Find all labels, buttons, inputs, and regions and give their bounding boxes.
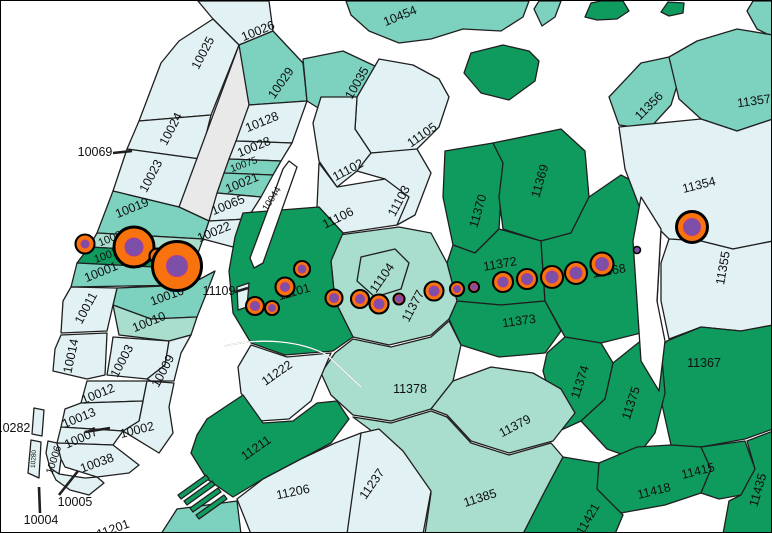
zip-label-10069: 10069 (78, 145, 113, 159)
zip-label-11109: 11109 (203, 284, 236, 298)
station-inner-dot (251, 302, 260, 311)
station-symbol (326, 290, 343, 307)
station-symbol (276, 278, 295, 297)
zip-label-10282: 10282 (1, 421, 30, 435)
station-inner-dot (81, 240, 89, 248)
zip-region-10282 (32, 408, 44, 436)
station-inner-dot (596, 258, 609, 271)
station-inner-dot (356, 295, 365, 304)
rikers-island (585, 1, 629, 20)
station-inner-dot (298, 265, 306, 273)
station-inner-dot (125, 238, 143, 256)
station-symbol (634, 247, 641, 254)
station-symbol (677, 212, 708, 243)
station-symbol (469, 282, 479, 292)
zip-region-11357 (669, 29, 772, 131)
station-symbol (294, 261, 310, 277)
bronx-shore-piece (534, 1, 561, 26)
station-inner-dot (374, 299, 384, 309)
zip-region-11367 (659, 325, 772, 447)
station-symbol (351, 290, 369, 308)
station-symbol (493, 272, 513, 292)
station-symbol (541, 266, 563, 288)
station-inner-dot (471, 284, 477, 290)
station-symbol (114, 227, 154, 267)
station-symbol (425, 282, 444, 301)
zip-label-11378: 11378 (393, 382, 427, 396)
station-symbol (517, 269, 537, 289)
station-inner-dot (570, 267, 582, 279)
station-inner-dot (269, 305, 276, 312)
station-symbol (591, 253, 614, 276)
station-symbol (246, 297, 264, 315)
zip-label-10004: 10004 (24, 513, 59, 527)
station-inner-dot (281, 283, 290, 292)
station-inner-dot (522, 274, 533, 285)
station-inner-dot (330, 294, 339, 303)
station-symbol (450, 282, 464, 296)
zip-label-10280: 10280 (30, 449, 38, 468)
bay-island (464, 45, 539, 100)
station-inner-dot (634, 247, 641, 254)
station-inner-dot (498, 277, 508, 287)
station-symbol (565, 262, 587, 284)
zip-label-11367: 11367 (687, 356, 721, 370)
station-symbol (394, 294, 405, 305)
station-symbol (76, 235, 95, 254)
station-inner-dot (167, 256, 188, 277)
zip-label-11201: 11201 (95, 517, 132, 533)
station-symbol (265, 301, 279, 315)
station-inner-dot (396, 296, 403, 303)
zip-label-10005: 10005 (58, 495, 93, 509)
station-symbol (153, 242, 202, 291)
zip-region-10454 (346, 1, 529, 43)
station-inner-dot (546, 271, 558, 283)
zip-region-11355 (661, 239, 772, 339)
station-symbol (370, 295, 389, 314)
nyc-zipcode-map: 1002610025100241002310069100291003510128… (0, 0, 772, 533)
leader-line-10004 (39, 487, 40, 513)
station-inner-dot (454, 286, 461, 293)
station-inner-dot (684, 219, 701, 236)
station-inner-dot (429, 286, 439, 296)
brother-island (661, 2, 684, 16)
